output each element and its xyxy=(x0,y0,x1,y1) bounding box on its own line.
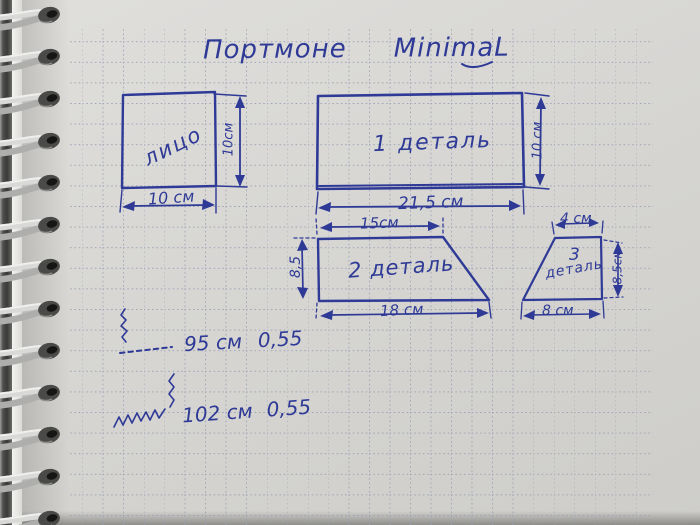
face-height-dimension: 10см xyxy=(222,123,235,157)
notebook-spine xyxy=(0,0,12,525)
seam2-length: 102 см xyxy=(181,401,253,426)
detail2-top-width-dimension: 15см xyxy=(360,215,399,231)
detail2-bottom-width-dimension: 18 см xyxy=(380,302,424,319)
title-word2: MinimaL xyxy=(394,35,510,62)
face-width-dimension: 10 см xyxy=(147,188,194,207)
page-title: Портмоне MinimaL xyxy=(203,35,510,64)
detail3-top-width-dimension: 4 см xyxy=(560,212,592,226)
detail2-height-dimension: 8,5 xyxy=(289,256,303,278)
page-left-edge xyxy=(12,0,22,525)
seam1-length: 95 см xyxy=(184,331,243,354)
seam1-allowance: 0,55 xyxy=(257,328,303,350)
detail3-bottom-width-dimension: 8 см xyxy=(542,304,574,318)
seam2-allowance: 0,55 xyxy=(266,397,312,420)
detail1-label: 1 деталь xyxy=(373,130,493,156)
title-word1: Портмоне xyxy=(203,36,347,63)
detail3-height-dimension: 8,5см xyxy=(611,250,623,285)
detail1-height-dimension: 10 см xyxy=(531,122,544,160)
detail1-width-dimension: 21,5 см xyxy=(398,194,464,213)
seam1-note: 95 см 0,55 xyxy=(184,328,303,354)
notebook-photo: Портмоне MinimaL лицо 10 см 10см 1 детал… xyxy=(0,0,700,525)
